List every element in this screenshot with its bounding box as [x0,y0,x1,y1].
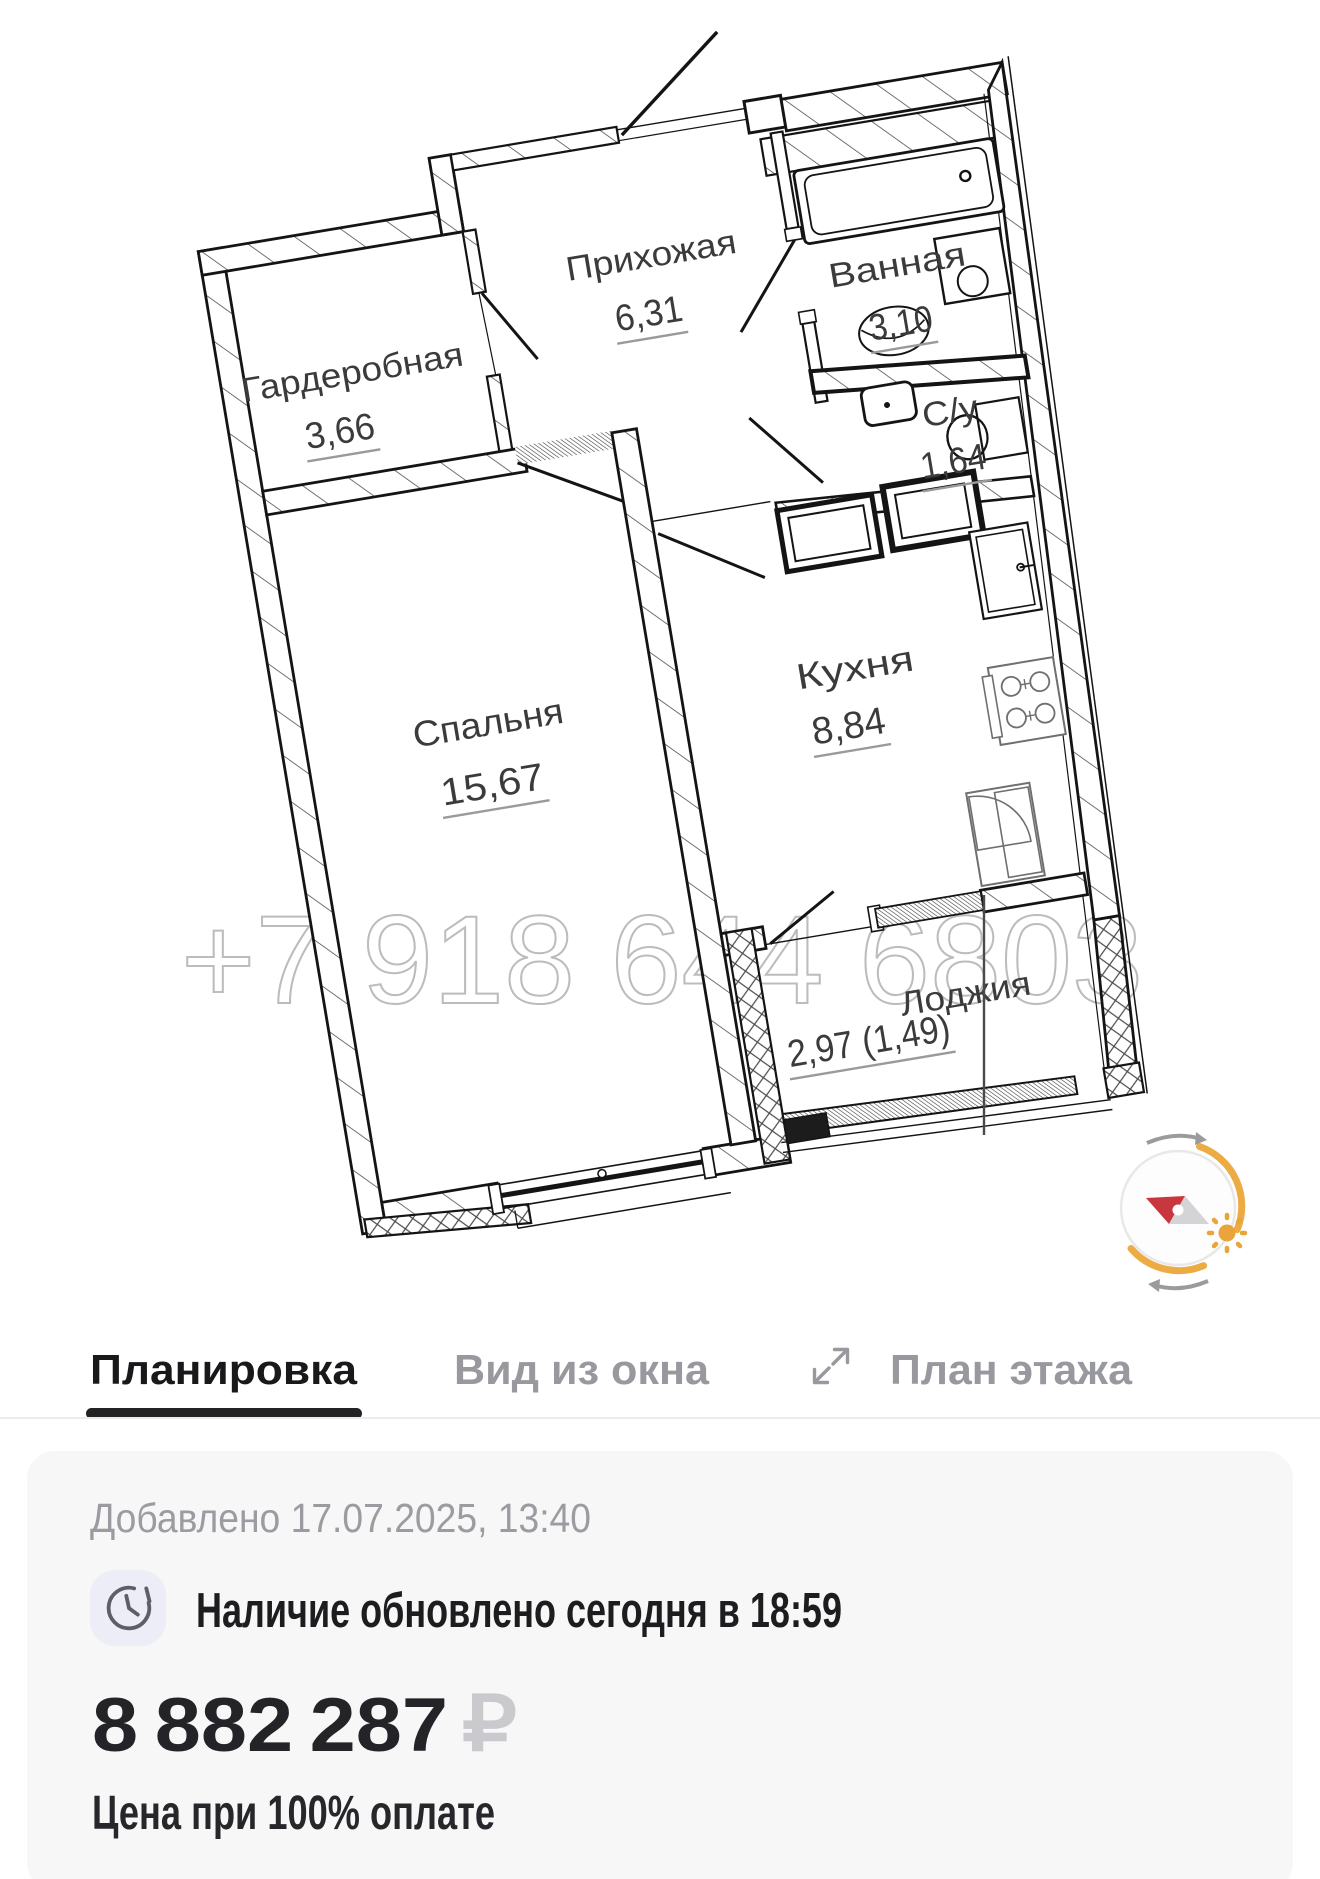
svg-text:15,67: 15,67 [438,756,548,815]
svg-text:Наличие обновлено сегодня в 18: Наличие обновлено сегодня в 18:59 [196,1584,842,1638]
svg-text:Спальня: Спальня [410,690,567,756]
svg-text:Планировка: Планировка [90,1346,358,1393]
svg-text:1,64: 1,64 [917,436,989,487]
svg-text:₽: ₽ [462,1682,517,1767]
svg-text:Добавлено 17.07.2025, 13:40: Добавлено 17.07.2025, 13:40 [90,1495,591,1541]
svg-text:3,66: 3,66 [302,405,378,457]
svg-text:6,31: 6,31 [612,288,686,340]
svg-text:Гардеробная: Гардеробная [239,336,466,410]
svg-text:Цена при 100% оплате: Цена при 100% оплате [92,1787,495,1840]
svg-text:Прихожая: Прихожая [563,223,739,289]
svg-text:Кухня: Кухня [793,637,916,697]
svg-text:8 882 287: 8 882 287 [92,1683,448,1768]
svg-text:Вид из окна: Вид из окна [454,1346,710,1393]
svg-text:3,10: 3,10 [866,298,936,349]
svg-text:План этажа: План этажа [890,1346,1133,1393]
